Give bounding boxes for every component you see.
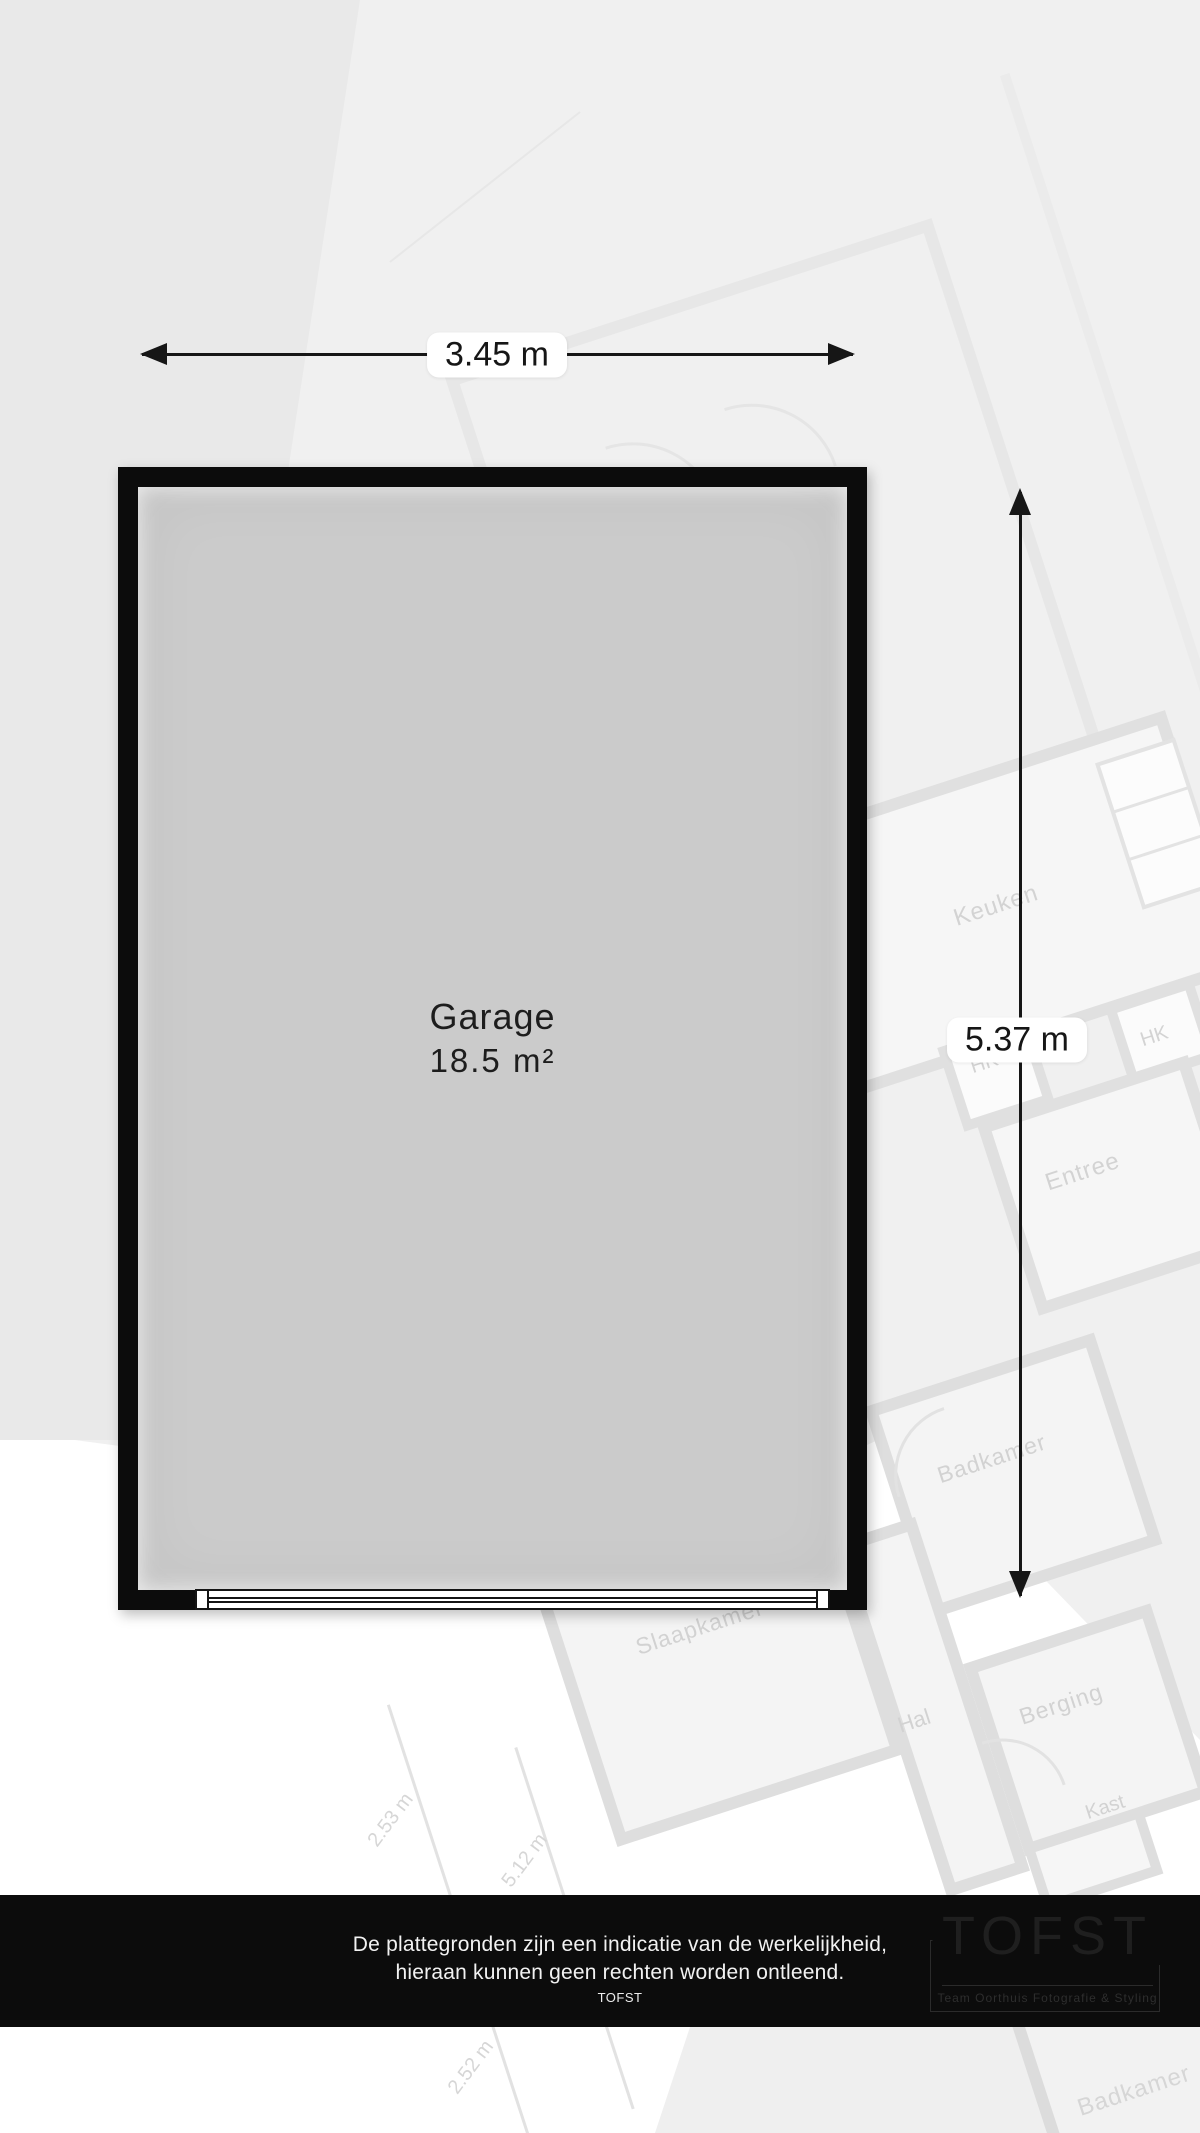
watermark-dim-512: 5.12 m bbox=[497, 1829, 551, 1891]
garage-door-symbol bbox=[195, 1589, 830, 1610]
tofst-logo-subtitle: Team Oorthuis Fotografie & Styling bbox=[930, 1991, 1165, 2005]
garage-floor: Garage 18.5 m² bbox=[138, 487, 847, 1590]
width-dimension-label: 3.45 m bbox=[427, 333, 567, 378]
garage-room: Garage 18.5 m² bbox=[118, 467, 867, 1610]
room-area-label: 18.5 m² bbox=[430, 1039, 556, 1083]
room-name-label: Garage bbox=[429, 995, 555, 1039]
height-dimension-arrowhead-bottom bbox=[1009, 1571, 1031, 1598]
tofst-logo-divider bbox=[942, 1985, 1153, 1986]
tofst-logo: TOFST Team Oorthuis Fotografie & Styling bbox=[930, 1907, 1165, 2015]
height-dimension-arrowhead-top bbox=[1009, 488, 1031, 515]
floorplan-page: Keuken HK HK Entree Badkamer Slaapkamer … bbox=[0, 0, 1200, 2133]
footer-bar: De plattegronden zijn een indicatie van … bbox=[0, 1895, 1200, 2027]
height-dimension-label: 5.37 m bbox=[947, 1018, 1087, 1063]
garage-door-endcap bbox=[207, 1591, 209, 1608]
garage-door-rail bbox=[209, 1597, 816, 1599]
tofst-logo-title: TOFST bbox=[932, 1907, 1163, 1965]
width-dimension-arrowhead-right bbox=[828, 343, 855, 365]
width-dimension-arrowhead-left bbox=[140, 343, 167, 365]
garage-door-rail bbox=[209, 1601, 816, 1603]
watermark-dim-252: 2.52 m bbox=[444, 2036, 498, 2098]
watermark-dim-253: 2.53 m bbox=[363, 1789, 417, 1851]
garage-door-endcap bbox=[816, 1591, 818, 1608]
